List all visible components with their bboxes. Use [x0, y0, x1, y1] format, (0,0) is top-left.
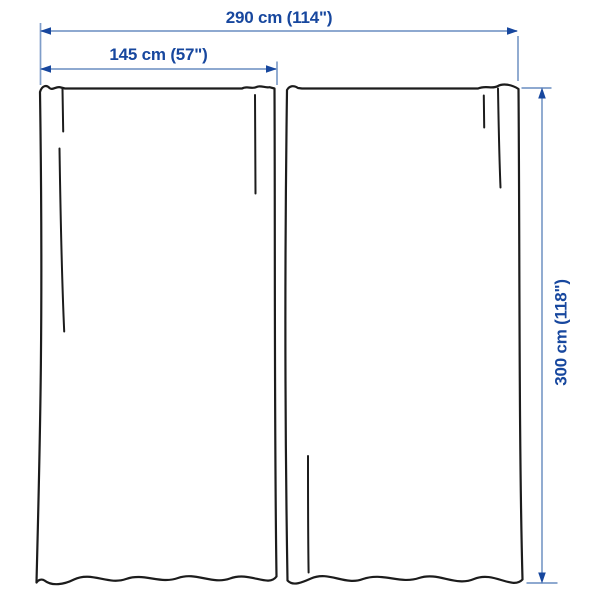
left-panel-fold-line	[63, 89, 64, 132]
right-panel-fold-line	[308, 456, 309, 573]
arrow-down-icon	[538, 573, 546, 584]
arrow-left-icon	[40, 27, 51, 35]
panel-width-label: 145 cm (57")	[40, 46, 277, 63]
arrow-up-icon	[538, 88, 546, 99]
arrow-right-icon	[507, 27, 518, 35]
left-panel-fold-line	[255, 95, 256, 194]
panel-width-dimension	[40, 62, 277, 86]
left-curtain-panel	[37, 86, 277, 584]
product-dimension-diagram: 290 cm (114") 145 cm (57") 300 cm (118")	[0, 0, 600, 600]
total-width-label: 290 cm (114")	[40, 9, 518, 26]
panel-height-label: 300 cm (118")	[551, 253, 572, 413]
right-curtain-panel	[285, 85, 522, 584]
arrow-left-icon	[40, 65, 51, 73]
diagram-canvas	[0, 0, 600, 600]
right-panel-outline	[285, 85, 522, 584]
arrow-right-icon	[266, 65, 277, 73]
left-panel-outline	[37, 86, 277, 584]
